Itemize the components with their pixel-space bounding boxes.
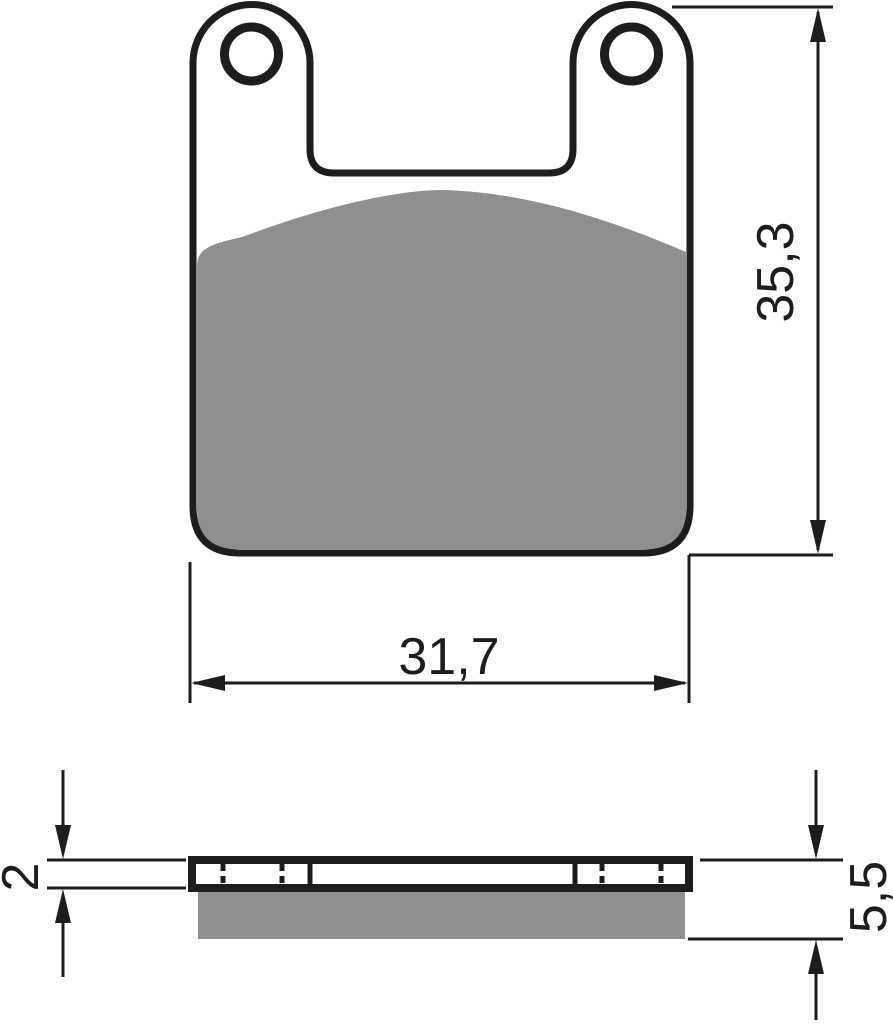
mounting-hole-right <box>605 27 659 81</box>
height-dimension-label: 35,3 <box>747 221 805 322</box>
dimension-backplate-thickness: 2 <box>0 770 186 977</box>
friction-material-side <box>198 892 685 939</box>
total-thickness-label: 5,5 <box>840 861 893 933</box>
width-dimension-label: 31,7 <box>398 628 499 686</box>
dimension-total-thickness: 5,5 <box>688 770 893 1020</box>
side-view <box>192 860 689 939</box>
width-arrowhead-right <box>654 675 688 691</box>
friction-material-front <box>197 190 686 549</box>
dimension-height: 35,3 <box>672 7 833 555</box>
front-view <box>193 5 690 554</box>
thickness2-arrowhead-down <box>55 825 71 859</box>
width-arrowhead-left <box>191 675 225 691</box>
drawing-svg: 35,3 31,7 <box>0 0 893 1024</box>
backplate-side <box>192 860 689 888</box>
thickness55-arrowhead-down <box>808 825 824 859</box>
height-arrowhead-down <box>810 520 826 554</box>
dimension-width: 31,7 <box>190 555 689 703</box>
brake-pad-technical-drawing: 35,3 31,7 <box>0 0 893 1024</box>
height-arrowhead-up <box>810 8 826 42</box>
backplate-thickness-label: 2 <box>0 863 50 892</box>
mounting-hole-left <box>225 27 279 81</box>
